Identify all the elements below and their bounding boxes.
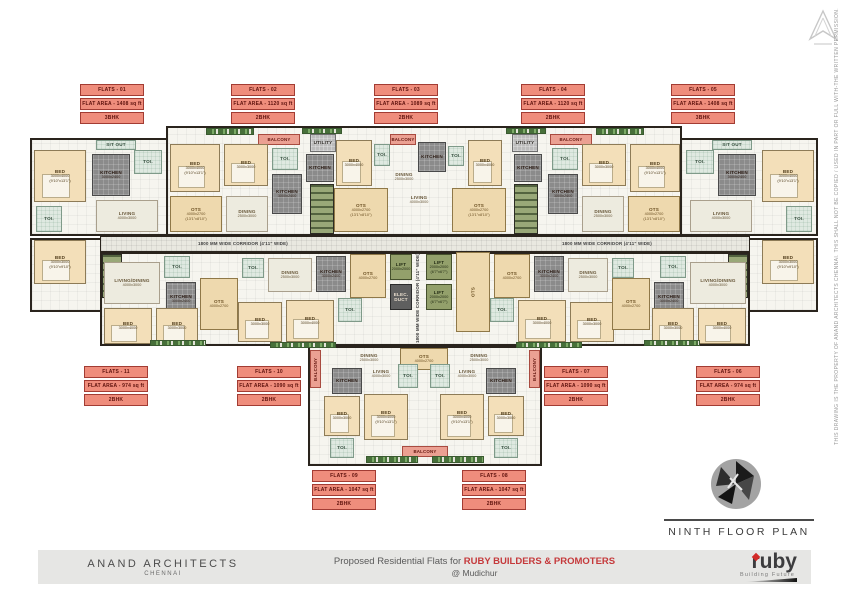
room-bed: BED3000x4000(9'10"x13'1") xyxy=(170,144,220,192)
room-ots: OTS xyxy=(456,252,490,332)
room-bed: BED3000x3000(9'10"x9'10") xyxy=(762,240,814,284)
client-name: RUBY BUILDERS & PROMOTERS xyxy=(464,556,615,567)
room-1800-mm-wide-corridor-4-11-wide: 1800 MM WIDE CORRIDOR (4'11" WIDE) xyxy=(176,238,310,250)
flat-area: FLAT AREA - 1120 sq ft xyxy=(521,98,585,110)
room-kitchen: KITCHEN xyxy=(514,154,542,182)
room-toi: TOI. xyxy=(134,150,162,174)
room-kitchen: KITCHEN xyxy=(418,142,446,172)
room-kitchen: KITCHEN3000x2400 xyxy=(92,154,130,196)
flat-area: FLAT AREA - 974 sq ft xyxy=(696,380,760,392)
firm-name: ANAND ARCHITECTS xyxy=(38,558,288,570)
stair-strip xyxy=(514,184,538,234)
flat-label-flats-03: FLATS - 03FLAT AREA - 1089 sq ft2BHK xyxy=(374,84,438,124)
project-location: @ Mudichur xyxy=(288,568,661,578)
room-lift: LIFT2000x2000 xyxy=(390,254,412,280)
room-ots: OTS4000x2700 xyxy=(612,278,650,330)
room-toi: TOI. xyxy=(374,144,390,166)
room-bed: BED3000x3000 xyxy=(570,302,614,342)
room-1800-mm-wide-corridor-4-11-wide: 1800 MM WIDE CORRIDOR (4'11" WIDE) xyxy=(412,252,423,344)
room-bed: BED3000x3000 xyxy=(156,308,198,344)
flat-label-flats-06: FLATS - 06FLAT AREA - 974 sq ft2BHK xyxy=(696,366,760,406)
room-toi: TOI. xyxy=(660,256,686,278)
flat-bhk: 2BHK xyxy=(374,112,438,124)
flat-name: FLATS - 03 xyxy=(374,84,438,96)
room-kitchen: KITCHEN xyxy=(332,368,362,394)
room-bed: BED3000x4000 xyxy=(698,308,746,344)
room-living-dining: LIVING/DINING4000x3000 xyxy=(690,262,746,304)
room-toi: TOI. xyxy=(430,364,450,388)
room-balcony: BALCONY xyxy=(390,134,416,145)
room-elec-duct: ELEC. DUCT xyxy=(390,284,412,310)
room-kitchen: KITCHEN xyxy=(306,154,334,182)
flat-area: FLAT AREA - 1090 sq ft xyxy=(544,380,608,392)
room-ots: OTS4000x2700(13'1"x8'10") xyxy=(628,196,680,232)
room-bed: BED3000x4000(9'10"x13'1") xyxy=(762,150,814,202)
room-bed: BED3000x4000(9'10"x13'1") xyxy=(440,394,484,440)
builder-logo: ruby Building Future xyxy=(661,550,811,584)
project-text: Proposed Residential Flats for xyxy=(334,556,461,567)
room-living: LIVING4000x3000 xyxy=(96,200,158,232)
flat-bhk: 2BHK xyxy=(312,498,376,510)
flat-name: FLATS - 04 xyxy=(521,84,585,96)
flat-name: FLATS - 06 xyxy=(696,366,760,378)
flat-area: FLAT AREA - 1047 sq ft xyxy=(462,484,526,496)
room-kitchen: KITCHEN3000x2400 xyxy=(718,154,756,196)
room-ots: OTS4000x2700 xyxy=(494,254,530,298)
room-bed: BED3000x4000(9'10"x13'1") xyxy=(34,150,86,202)
room-dining: DINING2500x3000 xyxy=(582,196,624,232)
room-toi: TOI. xyxy=(338,298,362,322)
room-bed: BED3000x3000 xyxy=(224,144,268,186)
room-utility: UTILITY xyxy=(512,134,538,152)
room-sit-out: SIT OUT xyxy=(96,140,136,150)
flat-label-flats-07: FLATS - 07FLAT AREA - 1090 sq ft2BHK xyxy=(544,366,608,406)
swoosh-icon xyxy=(745,578,797,582)
builder-tagline: Building Future xyxy=(740,572,795,578)
room-bed: BED3000x4000 xyxy=(336,140,372,186)
flat-bhk: 3BHK xyxy=(671,112,735,124)
room-toi: TOI. xyxy=(272,148,298,170)
room-toi: TOI. xyxy=(786,206,812,232)
room-dining: DINING2500x3000 xyxy=(568,258,608,292)
room-living: LIVING4000x3000 xyxy=(690,200,752,232)
plants-strip xyxy=(366,456,418,463)
room-kitchen: KITCHEN3000x2400 xyxy=(272,174,302,214)
flat-bhk: 2BHK xyxy=(84,394,148,406)
flat-area: FLAT AREA - 1090 sq ft xyxy=(237,380,301,392)
plants-strip xyxy=(516,342,582,348)
room-kitchen: KITCHEN3000x2400 xyxy=(548,174,578,214)
flat-bhk: 2BHK xyxy=(462,498,526,510)
room-kitchen: KITCHEN3000x2400 xyxy=(534,256,564,292)
flat-area: FLAT AREA - 974 sq ft xyxy=(84,380,148,392)
room-lift: LIFT2000x2000(6'7"x6'7") xyxy=(426,254,452,280)
flat-label-flats-05: FLATS - 05FLAT AREA - 1408 sq ft3BHK xyxy=(671,84,735,124)
room-bed: BED3000x4000(9'10"x13'1") xyxy=(630,144,680,192)
flat-label-flats-11: FLATS - 11FLAT AREA - 974 sq ft2BHK xyxy=(84,366,148,406)
flat-bhk: 2BHK xyxy=(521,112,585,124)
room-living: LIVING4000x3000 xyxy=(404,192,434,208)
architect-block: ANAND ARCHITECTS CHENNAI xyxy=(38,558,288,577)
room-toi: TOI. xyxy=(494,438,518,458)
room-toi: TOI. xyxy=(398,364,418,388)
room-toi: TOI. xyxy=(490,298,514,322)
flat-bhk: 2BHK xyxy=(231,112,295,124)
room-bed: BED3000x4000(9'10"x13'1") xyxy=(364,394,408,440)
flat-area: FLAT AREA - 1408 sq ft xyxy=(80,98,144,110)
plants-strip xyxy=(432,456,484,463)
room-living: LIVING4000x3000 xyxy=(366,366,396,382)
firm-city: CHENNAI xyxy=(38,571,288,577)
room-dining: DINING2500x3000 xyxy=(268,258,312,292)
room-dining: DINING2500x3000 xyxy=(390,168,418,186)
room-toi: TOI. xyxy=(448,146,464,166)
room-ots: OTS4000x2700 xyxy=(200,278,238,330)
room-1800-mm-wide-corridor-4-11-wide: 1800 MM WIDE CORRIDOR (4'11" WIDE) xyxy=(540,238,674,250)
room-living: LIVING4000x3000 xyxy=(452,366,482,382)
flat-name: FLATS - 05 xyxy=(671,84,735,96)
room-bed: BED3000x3000(9'10"x9'10") xyxy=(34,240,86,284)
room-balcony: BALCONY xyxy=(529,350,540,388)
flat-name: FLATS - 10 xyxy=(237,366,301,378)
plan-title: NINTH FLOOR PLAN xyxy=(664,526,814,538)
flat-name: FLATS - 02 xyxy=(231,84,295,96)
room-kitchen: KITCHEN3000x2400 xyxy=(316,256,346,292)
room-ots: OTS4000x2700 xyxy=(350,254,386,298)
flat-area: FLAT AREA - 1120 sq ft xyxy=(231,98,295,110)
plants-strip xyxy=(270,342,336,348)
room-living-dining: LIVING/DINING4000x3000 xyxy=(104,262,160,304)
project-block: Proposed Residential Flats for RUBY BUIL… xyxy=(288,556,661,578)
north-arrow-logo xyxy=(708,456,764,512)
room-dining: DINING2500x3000 xyxy=(226,196,268,232)
drawing-sheet: SIT OUTBED3000x4000(9'10"x13'1")KITCHEN3… xyxy=(0,0,849,600)
room-ots: OTS4000x2700(13'1"x8'10") xyxy=(334,188,388,232)
room-toi: TOI. xyxy=(242,258,264,278)
room-bed: BED3000x3000 xyxy=(488,396,524,436)
room-kitchen: KITCHEN xyxy=(486,368,516,394)
flat-name: FLATS - 09 xyxy=(312,470,376,482)
room-bed: BED3000x4000 xyxy=(518,300,566,342)
flat-bhk: 3BHK xyxy=(80,112,144,124)
room-ots: OTS4000x2700(13'1"x8'10") xyxy=(452,188,506,232)
room-lift: LIFT2000x2000(6'7"x6'7") xyxy=(426,284,452,310)
room-bed: BED3000x4000 xyxy=(468,140,502,186)
room-utility: UTILITY xyxy=(310,134,336,152)
plants-strip xyxy=(596,128,644,135)
room-dining: DINING2500x3000 xyxy=(458,350,500,366)
room-toi: TOI. xyxy=(686,150,714,174)
flat-label-flats-01: FLATS - 01FLAT AREA - 1408 sq ft3BHK xyxy=(80,84,144,124)
flat-name: FLATS - 01 xyxy=(80,84,144,96)
room-toi: TOI. xyxy=(330,438,354,458)
flat-area: FLAT AREA - 1089 sq ft xyxy=(374,98,438,110)
plants-strip xyxy=(644,340,700,346)
flat-label-flats-08: FLATS - 08FLAT AREA - 1047 sq ft2BHK xyxy=(462,470,526,510)
plants-strip xyxy=(206,128,254,135)
room-bed: BED3000x3000 xyxy=(582,144,626,186)
flat-bhk: 2BHK xyxy=(696,394,760,406)
flat-area: FLAT AREA - 1408 sq ft xyxy=(671,98,735,110)
room-toi: TOI. xyxy=(612,258,634,278)
room-ots: OTS4000x2700(13'1"x8'10") xyxy=(170,196,222,232)
flat-name: FLATS - 11 xyxy=(84,366,148,378)
room-bed: BED3000x3000 xyxy=(324,396,360,436)
room-bed: BED3000x3000 xyxy=(652,308,694,344)
flat-label-flats-10: FLATS - 10FLAT AREA - 1090 sq ft2BHK xyxy=(237,366,301,406)
title-bar: ANAND ARCHITECTS CHENNAI Proposed Reside… xyxy=(38,550,811,584)
plan-title-block: NINTH FLOOR PLAN xyxy=(664,519,814,538)
disclaimer-text: THIS DRAWING IS THE PROPERTY OF ANAND AR… xyxy=(834,190,840,445)
flat-label-flats-04: FLATS - 04FLAT AREA - 1120 sq ft2BHK xyxy=(521,84,585,124)
flat-label-flats-09: FLATS - 09FLAT AREA - 1047 sq ft2BHK xyxy=(312,470,376,510)
room-toi: TOI. xyxy=(552,148,578,170)
room-bed: BED3000x4000 xyxy=(286,300,334,342)
flat-label-flats-02: FLATS - 02FLAT AREA - 1120 sq ft2BHK xyxy=(231,84,295,124)
flat-name: FLATS - 07 xyxy=(544,366,608,378)
flat-area: FLAT AREA - 1047 sq ft xyxy=(312,484,376,496)
flat-bhk: 2BHK xyxy=(237,394,301,406)
room-bed: BED3000x4000 xyxy=(104,308,152,344)
room-dining: DINING2500x3000 xyxy=(348,350,390,366)
title-rule xyxy=(664,519,814,521)
flat-bhk: 2BHK xyxy=(544,394,608,406)
room-toi: TOI. xyxy=(36,206,62,232)
room-toi: TOI. xyxy=(164,256,190,278)
flat-name: FLATS - 08 xyxy=(462,470,526,482)
room-sit-out: SIT OUT xyxy=(712,140,752,150)
plants-strip xyxy=(150,340,206,346)
stair-strip xyxy=(310,184,334,234)
room-bed: BED3000x3000 xyxy=(238,302,282,342)
room-balcony: BALCONY xyxy=(310,350,321,388)
